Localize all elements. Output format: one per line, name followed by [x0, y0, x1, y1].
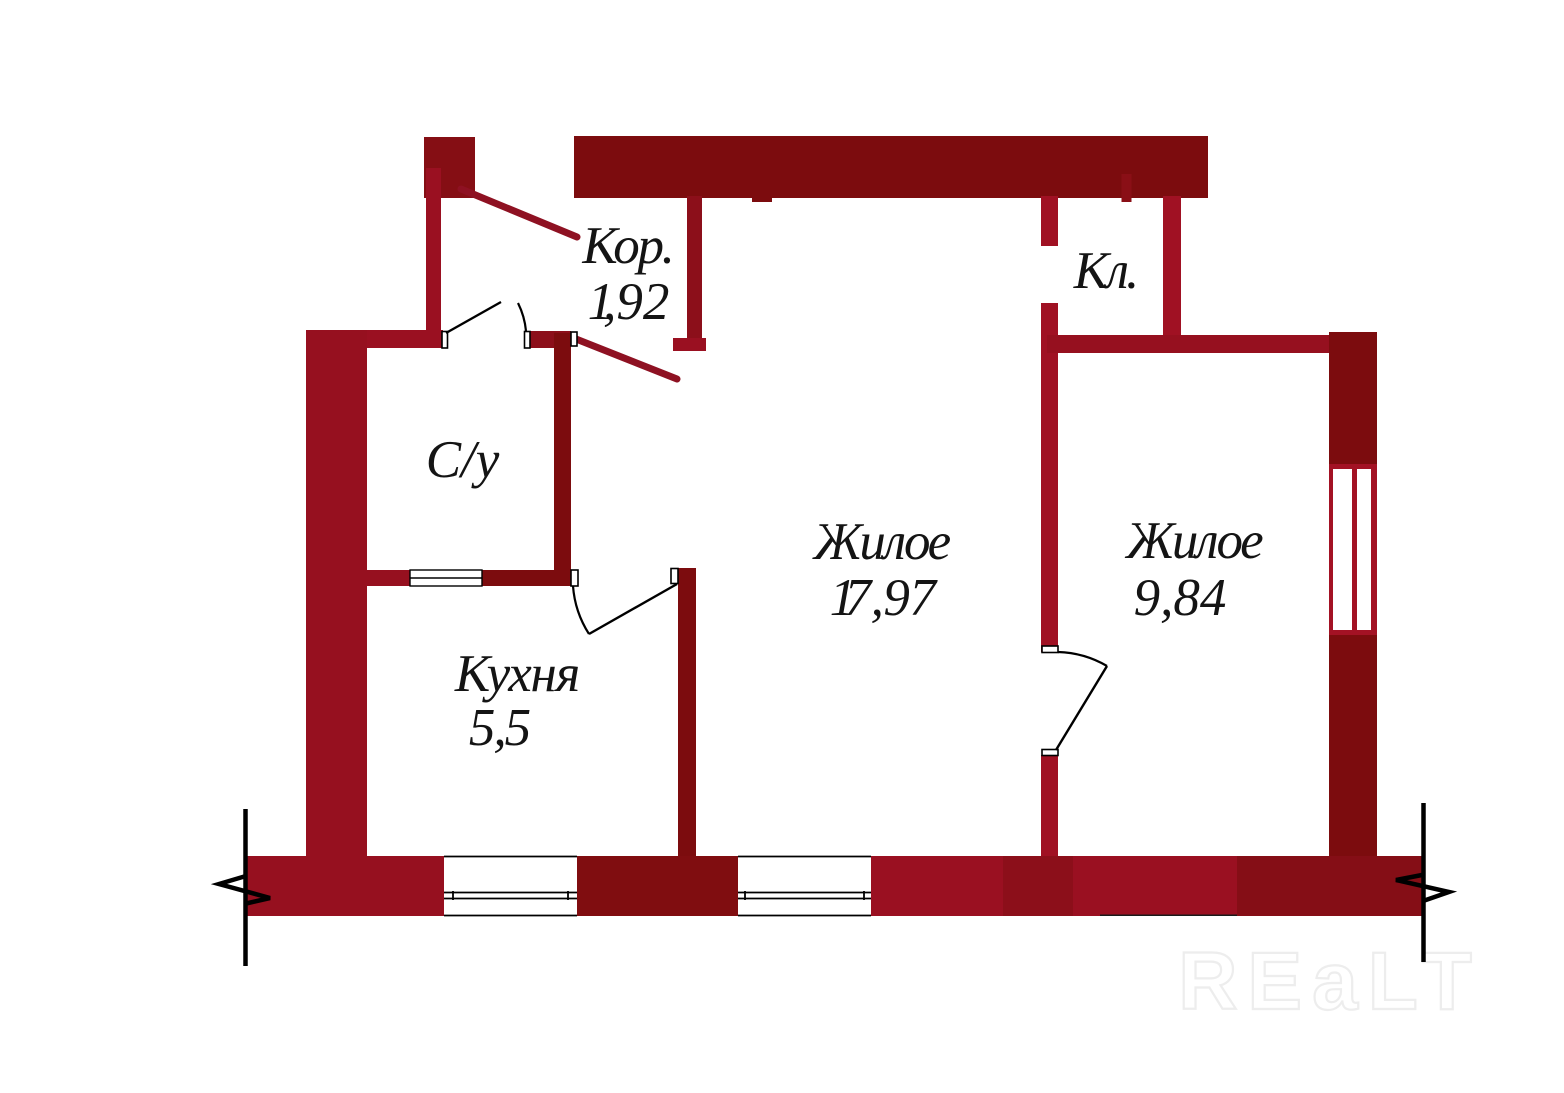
svg-text:5,5: 5,5	[469, 699, 530, 757]
svg-text:С/у: С/у	[426, 431, 500, 489]
svg-text:1,92: 1,92	[588, 273, 670, 331]
svg-text:Жилое: Жилое	[1124, 512, 1263, 570]
svg-text:17,97: 17,97	[830, 569, 939, 627]
svg-text:Кухня: Кухня	[454, 645, 579, 703]
svg-text:REaLT: REaLT	[1178, 936, 1482, 1027]
svg-text:Жилое: Жилое	[812, 513, 951, 571]
svg-text:Кл.: Кл.	[1073, 242, 1137, 300]
svg-text:9,84: 9,84	[1134, 569, 1227, 627]
svg-text:Кор.: Кор.	[581, 217, 672, 275]
